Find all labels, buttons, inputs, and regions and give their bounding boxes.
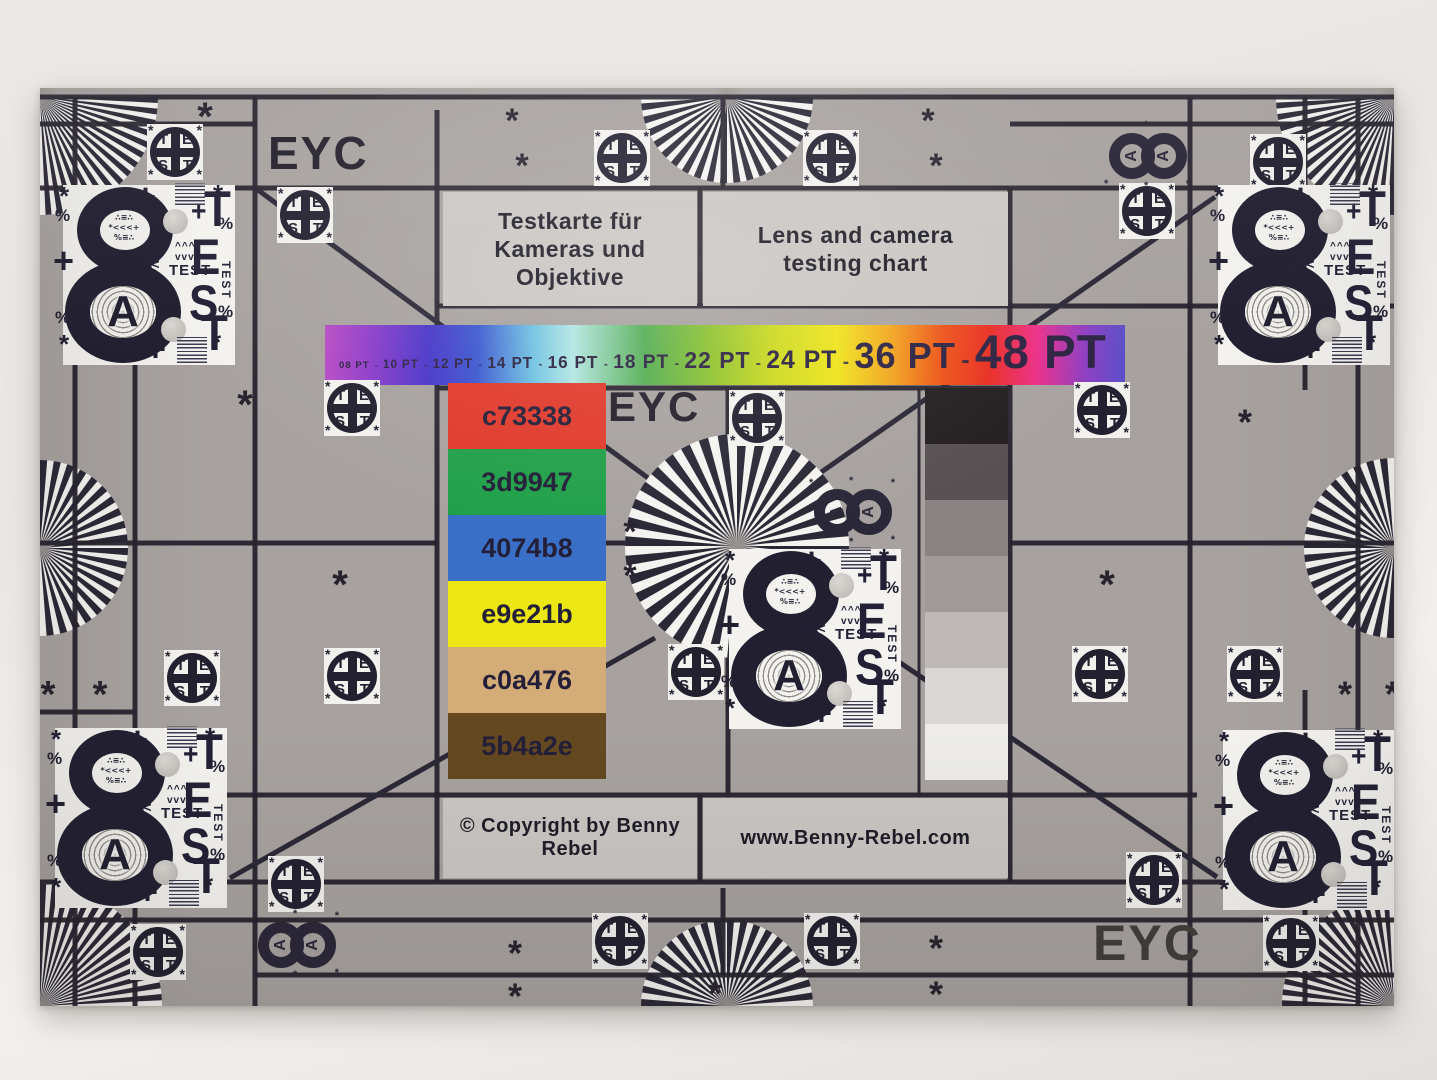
pt-separator: - — [424, 360, 427, 371]
gray-step — [925, 612, 1008, 668]
concentric-rings: A — [1250, 831, 1316, 883]
asterisk-mark: * — [165, 649, 170, 663]
figure-eight-bottom-ring: A — [1225, 806, 1341, 908]
test-letter: T — [159, 132, 168, 147]
arrows-mark: <<< — [1292, 257, 1314, 271]
copyright-text: © Copyright by Benny Rebel — [443, 815, 697, 861]
asterisk-mark: * — [853, 129, 858, 143]
column-letter: T — [1359, 187, 1386, 231]
test-letter: T — [304, 890, 313, 905]
hatch-pattern — [175, 183, 205, 205]
asterisk-mark: * — [93, 676, 108, 714]
test-letter: E — [1161, 860, 1171, 875]
website-text: www.Benny-Rebel.com — [741, 827, 971, 850]
gray-ball — [1318, 209, 1343, 234]
asterisk-mark: * — [1251, 133, 1256, 147]
asterisk-mark: * — [335, 911, 339, 922]
test-letter: S — [1238, 680, 1248, 695]
test-letter: S — [288, 221, 298, 236]
test-letter: E — [199, 658, 209, 673]
test-letter: T — [1263, 680, 1272, 695]
asterisk-mark: * — [1176, 851, 1181, 865]
test-letter: T — [839, 164, 848, 179]
percent-mark: % — [47, 750, 62, 767]
asterisk-mark: * — [805, 912, 810, 926]
test-letter: T — [1239, 654, 1248, 669]
column-letter: T — [196, 730, 223, 774]
test-letter: T — [765, 424, 774, 439]
micro-pattern: ∴≡∴ *<<<+ %≡∴ — [101, 213, 147, 243]
pt-size-label: 36 PT — [854, 335, 956, 377]
gray-step — [925, 444, 1008, 500]
color-patch: 3d9947 — [448, 449, 606, 515]
cross-bar — [301, 191, 310, 239]
micro-pattern: ∴≡∴ *<<<+ %≡∴ — [767, 577, 813, 607]
asterisk-mark: * — [1219, 876, 1229, 902]
gray-step — [925, 556, 1008, 612]
eight-a-test-block: * * * * % % % % + + + ∴≡∴ *<<<+ %≡∴ A <<… — [55, 728, 227, 908]
micro-pattern: ∴≡∴ *<<<+ %≡∴ — [1261, 758, 1307, 788]
asterisk-mark: * — [165, 693, 170, 707]
gray-ball — [163, 209, 188, 234]
asterisk-mark: * — [891, 478, 895, 489]
eight-a-marker-icon: * * * * * * A A — [1109, 131, 1187, 181]
asterisk-mark: * — [51, 874, 61, 900]
cross-bar — [348, 652, 357, 700]
hatch-pattern — [1337, 882, 1367, 908]
asterisk-mark: * — [1228, 689, 1233, 703]
test-letter: T — [816, 921, 825, 936]
asterisk-mark: * — [1186, 122, 1190, 133]
test-letter: T — [183, 158, 192, 173]
color-patch: 4074b8 — [448, 515, 606, 581]
asterisk-mark: * — [669, 643, 674, 657]
test-letter: T — [1138, 860, 1147, 875]
concentric-rings: A — [90, 286, 156, 338]
test-letter: E — [1107, 654, 1117, 669]
title-english-line1: Lens and camera — [758, 221, 953, 249]
test-letter: S — [158, 158, 168, 173]
column-letter: E — [191, 235, 220, 279]
color-patch: e9e21b — [448, 581, 606, 647]
test-circle-icon: * * * * T E S T — [130, 924, 186, 980]
eight-a-test-block: * * * * % % % % + + + ∴≡∴ *<<<+ %≡∴ A <<… — [729, 549, 901, 729]
cross-bar — [828, 917, 837, 965]
asterisk-mark: * — [505, 104, 518, 138]
asterisk-mark: * — [730, 389, 735, 403]
asterisk-mark: * — [1073, 645, 1078, 659]
test-letter: S — [1274, 949, 1284, 964]
column-letter: E — [183, 778, 212, 822]
gray-step — [925, 500, 1008, 556]
asterisk-mark: * — [374, 647, 379, 661]
asterisk-mark: * — [1300, 133, 1305, 147]
eight-a-test-block: * * * * % % % % + + + ∴≡∴ *<<<+ %≡∴ A <<… — [1223, 730, 1394, 910]
asterisk-mark: * — [1385, 676, 1394, 712]
test-letter: E — [627, 921, 637, 936]
asterisk-mark: * — [1127, 851, 1132, 865]
column-letter: E — [857, 599, 886, 643]
test-circle-icon: * * * * T E S T — [268, 856, 324, 912]
asterisk-mark: * — [278, 186, 283, 200]
asterisk-mark: * — [197, 167, 202, 181]
hatch-pattern — [169, 880, 199, 906]
test-letter: S — [814, 164, 824, 179]
test-letter: T — [604, 921, 613, 936]
asterisk-mark: * — [214, 649, 219, 663]
asterisk-mark: * — [1264, 958, 1269, 972]
pt-separator: - — [961, 346, 969, 375]
asterisk-mark: * — [1238, 404, 1252, 440]
asterisk-mark: * — [374, 423, 379, 437]
asterisk-mark: * — [809, 478, 813, 489]
test-letter: T — [1162, 886, 1171, 901]
test-letter: E — [764, 398, 774, 413]
hatch-pattern — [1335, 728, 1365, 750]
test-letter: S — [1261, 168, 1271, 183]
asterisk-mark: * — [1169, 182, 1174, 196]
title-german-line1: Testkarte für — [498, 207, 642, 235]
figure-eight-bottom-ring: A — [65, 261, 181, 363]
pt-size-label: 16 PT — [548, 352, 599, 373]
font-size-scale-bar: 08 PT-10 PT-12 PT-14 PT-16 PT-18 PT-22 P… — [325, 325, 1125, 385]
cross-bar — [692, 648, 701, 696]
asterisk-mark: * — [1120, 226, 1125, 240]
asterisk-mark: * — [854, 956, 859, 970]
asterisk-mark: * — [508, 935, 522, 971]
test-circle-icon: * * * * T E S T — [277, 187, 333, 243]
gray-ball — [155, 752, 180, 777]
test-letter: T — [336, 388, 345, 403]
test-letter: S — [1130, 217, 1140, 232]
test-letter: T — [280, 864, 289, 879]
patch-hex-label: e9e21b — [481, 599, 573, 630]
test-letter: E — [1109, 390, 1119, 405]
asterisk-mark: * — [1144, 181, 1148, 192]
asterisk-mark: * — [854, 912, 859, 926]
test-letter: T — [313, 221, 322, 236]
asterisk-mark: * — [718, 643, 723, 657]
asterisk-mark: * — [849, 476, 853, 487]
patch-hex-label: c0a476 — [482, 665, 572, 696]
asterisk-mark: * — [779, 433, 784, 447]
pt-size-label: 10 PT — [383, 359, 419, 371]
test-chart-card: Testkarte für Kameras und Objektive Lens… — [40, 88, 1394, 1006]
eight-a-test-block: * * * * % % % % + + + ∴≡∴ *<<<+ %≡∴ A <<… — [1218, 185, 1390, 365]
asterisk-mark: * — [131, 923, 136, 937]
asterisk-mark: * — [325, 423, 330, 437]
eight-a-marker-icon: * * * * * * A A — [814, 487, 892, 537]
pt-separator: - — [479, 359, 483, 371]
test-letter: E — [303, 864, 313, 879]
concentric-rings: A — [1245, 286, 1311, 338]
test-letter: S — [605, 164, 615, 179]
pt-size-label: 18 PT — [613, 352, 669, 374]
test-letter: E — [165, 932, 175, 947]
asterisk-mark: * — [929, 149, 942, 183]
asterisk-mark: * — [804, 173, 809, 187]
title-english-panel: Lens and camera testing chart — [703, 192, 1008, 306]
asterisk-mark: * — [1277, 645, 1282, 659]
pt-size-label: 24 PT — [766, 347, 837, 375]
percent-mark: % — [721, 571, 736, 588]
asterisk-mark: * — [293, 970, 297, 981]
asterisk-mark: * — [642, 956, 647, 970]
column-letter: T — [870, 551, 897, 595]
test-circle-icon: * * * * T E S T — [1263, 915, 1319, 971]
test-letter: S — [679, 678, 689, 693]
column-letter: E — [1346, 235, 1375, 279]
asterisk-mark: * — [921, 104, 934, 138]
asterisk-mark: * — [593, 956, 598, 970]
test-letter: E — [839, 921, 849, 936]
test-letter: E — [1298, 923, 1308, 938]
grayscale-step-wedge — [925, 388, 1008, 780]
cross-bar — [616, 917, 625, 965]
asterisk-mark: * — [318, 855, 323, 869]
asterisk-mark: * — [318, 899, 323, 913]
asterisk-mark: * — [515, 149, 528, 183]
test-letter: T — [200, 684, 209, 699]
column-letter: T — [1364, 732, 1391, 776]
test-letter: S — [141, 958, 151, 973]
test-circle-icon: * * * * T E S T — [324, 648, 380, 704]
asterisk-mark: * — [293, 909, 297, 920]
arrows-mark: <<< — [803, 621, 825, 635]
cross-bar — [1274, 138, 1283, 186]
hatch-pattern — [1330, 183, 1360, 205]
eyc-label-top: EYC — [268, 130, 369, 176]
asterisk-mark: * — [1075, 381, 1080, 395]
percent-mark: % — [1215, 752, 1230, 769]
test-letter: T — [741, 398, 750, 413]
asterisk-mark: * — [1277, 689, 1282, 703]
test-letter: T — [360, 414, 369, 429]
ring-with-letter: A — [290, 922, 336, 968]
starburst-fan-icon — [641, 88, 813, 183]
test-letter: T — [166, 958, 175, 973]
micro-pattern: ∴≡∴ *<<<+ %≡∴ — [93, 756, 139, 786]
asterisk-mark: * — [59, 331, 69, 357]
asterisk-mark: * — [1122, 689, 1127, 703]
asterisk-mark: * — [1144, 120, 1148, 131]
test-letter: S — [279, 890, 289, 905]
cross-bar — [827, 134, 836, 182]
test-letter: E — [1154, 191, 1164, 206]
starburst-fan-icon — [641, 920, 813, 1006]
asterisk-mark: * — [595, 129, 600, 143]
test-letter: T — [1086, 390, 1095, 405]
test-letter: E — [838, 138, 848, 153]
asterisk-mark: * — [1120, 182, 1125, 196]
hatch-pattern — [843, 701, 873, 727]
asterisk-mark: * — [374, 691, 379, 705]
test-letter: S — [1137, 886, 1147, 901]
asterisk-mark: * — [595, 173, 600, 187]
pt-separator: - — [604, 357, 608, 371]
asterisk-mark: * — [325, 379, 330, 393]
asterisk-mark: * — [214, 693, 219, 707]
test-letter: E — [182, 132, 192, 147]
test-letter: T — [289, 195, 298, 210]
plus-mark: + — [719, 607, 740, 643]
pt-separator: - — [843, 352, 849, 374]
asterisk-mark: * — [623, 559, 636, 593]
letter-a: A — [107, 287, 139, 337]
photo-background: Testkarte für Kameras und Objektive Lens… — [0, 0, 1437, 1080]
test-letter: T — [176, 658, 185, 673]
eight-a-test-block: * * * * % % % % + + + ∴≡∴ *<<<+ %≡∴ A <<… — [63, 185, 235, 365]
asterisk-mark: * — [180, 923, 185, 937]
eyc-label-bottom: EYC — [1093, 918, 1202, 968]
test-letter: E — [1285, 142, 1295, 157]
pt-separator: - — [538, 359, 542, 371]
ring-with-letter: A — [846, 489, 892, 535]
test-letter: T — [1108, 680, 1117, 695]
ring-with-letter: A — [1141, 133, 1187, 179]
test-letter: T — [628, 947, 637, 962]
asterisk-mark: * — [853, 173, 858, 187]
title-german-panel: Testkarte für Kameras und Objektive — [443, 192, 697, 306]
pt-size-label: 12 PT — [433, 356, 474, 371]
asterisk-mark: * — [708, 977, 721, 1006]
gray-step — [925, 668, 1008, 724]
asterisk-mark: * — [253, 968, 257, 979]
asterisk-mark: * — [804, 129, 809, 143]
copyright-panel: © Copyright by Benny Rebel — [443, 798, 697, 878]
asterisk-mark: * — [131, 967, 136, 981]
test-letter: T — [142, 932, 151, 947]
eight-a-marker-icon: * * * * * * A A — [258, 920, 336, 970]
percent-mark: % — [55, 207, 70, 224]
column-letter: T — [204, 187, 231, 231]
test-letter: S — [740, 424, 750, 439]
arrows-mark: <<< — [129, 800, 151, 814]
test-letter: T — [1084, 654, 1093, 669]
asterisk-mark: * — [1313, 914, 1318, 928]
asterisk-mark: * — [197, 123, 202, 137]
cross-bar — [1150, 856, 1159, 904]
test-letter: E — [359, 388, 369, 403]
color-patch: c0a476 — [448, 647, 606, 713]
asterisk-mark: * — [644, 129, 649, 143]
title-english-line2: testing chart — [783, 249, 928, 277]
pt-size-label: 22 PT — [684, 347, 750, 374]
asterisk-mark: * — [374, 379, 379, 393]
cross-bar — [1143, 187, 1152, 235]
asterisk-mark: * — [1099, 565, 1115, 605]
asterisk-mark: * — [253, 911, 257, 922]
asterisk-mark: * — [327, 186, 332, 200]
test-circle-icon: * * * * T E S T — [594, 130, 650, 186]
asterisk-mark: * — [180, 967, 185, 981]
asterisk-mark: * — [269, 899, 274, 913]
column-letter: E — [1351, 780, 1380, 824]
test-circle-icon: * * * * T E S T — [1072, 646, 1128, 702]
asterisk-mark: * — [644, 173, 649, 187]
asterisk-mark: * — [1214, 331, 1224, 357]
test-circle-icon: * * * * T E S T — [729, 390, 785, 446]
test-letter: S — [1085, 416, 1095, 431]
test-circle-icon: * * * * T E S T — [147, 124, 203, 180]
hatch-pattern — [167, 726, 197, 748]
test-letter: T — [680, 652, 689, 667]
test-letter: T — [815, 138, 824, 153]
cross-bar — [1096, 650, 1105, 698]
test-letter: T — [1262, 142, 1271, 157]
concentric-rings: A — [82, 829, 148, 881]
asterisk-mark: * — [730, 433, 735, 447]
cross-bar — [348, 384, 357, 432]
test-circle-icon: * * * * T E S T — [1074, 382, 1130, 438]
rotated-test-word: TEST — [1380, 806, 1392, 845]
test-letter: T — [630, 164, 639, 179]
asterisk-mark: * — [1122, 645, 1127, 659]
pt-size-label: 14 PT — [487, 355, 533, 373]
plus-mark: + — [1208, 243, 1229, 279]
asterisk-mark: * — [623, 515, 636, 549]
rotated-test-word: TEST — [1375, 261, 1387, 300]
test-letter: S — [1083, 680, 1093, 695]
test-letter: E — [629, 138, 639, 153]
test-circle-icon: * * * * T E S T — [803, 130, 859, 186]
asterisk-mark: * — [1124, 381, 1129, 395]
test-letter: T — [1299, 949, 1308, 964]
asterisk-mark: * — [1176, 895, 1181, 909]
asterisk-mark: * — [1104, 179, 1108, 190]
hatch-pattern — [177, 337, 207, 363]
asterisk-mark: * — [1313, 958, 1318, 972]
asterisk-mark: * — [805, 956, 810, 970]
cross-bar — [154, 928, 163, 976]
asterisk-mark: * — [332, 565, 348, 605]
test-circle-icon: * * * * T E S T — [804, 913, 860, 969]
letter-a: A — [1262, 287, 1294, 337]
asterisk-mark: * — [1127, 895, 1132, 909]
asterisk-mark: * — [1124, 425, 1129, 439]
letter-a: A — [773, 651, 805, 701]
test-circle-icon: * * * * T E S T — [1126, 852, 1182, 908]
test-letter: E — [312, 195, 322, 210]
asterisk-mark: * — [929, 930, 943, 966]
asterisk-mark: * — [41, 676, 56, 714]
test-letter: S — [335, 682, 345, 697]
gray-step — [925, 724, 1008, 780]
rotated-test-word: TEST — [886, 625, 898, 664]
test-circle-icon: * * * * T E S T — [164, 650, 220, 706]
test-letter: T — [704, 678, 713, 693]
color-patch: 5b4a2e — [448, 713, 606, 779]
asterisk-mark: * — [669, 687, 674, 701]
asterisk-mark: * — [779, 389, 784, 403]
asterisk-mark: * — [1075, 425, 1080, 439]
asterisk-mark: * — [1186, 179, 1190, 190]
test-circle-icon: * * * * T E S T — [1227, 646, 1283, 702]
asterisk-mark: * — [929, 976, 943, 1006]
concentric-rings: A — [756, 650, 822, 702]
asterisk-mark: * — [1228, 645, 1233, 659]
cross-bar — [171, 128, 180, 176]
gray-step — [925, 388, 1008, 444]
micro-pattern: ∴≡∴ *<<<+ %≡∴ — [1256, 213, 1302, 243]
patch-hex-label: 5b4a2e — [481, 731, 573, 762]
pt-separator: - — [756, 355, 761, 373]
patch-hex-label: 3d9947 — [481, 467, 573, 498]
asterisk-mark: * — [508, 978, 522, 1006]
test-circle-icon: * * * * T E S T — [324, 380, 380, 436]
asterisk-mark: * — [327, 230, 332, 244]
gray-ball — [1323, 754, 1348, 779]
